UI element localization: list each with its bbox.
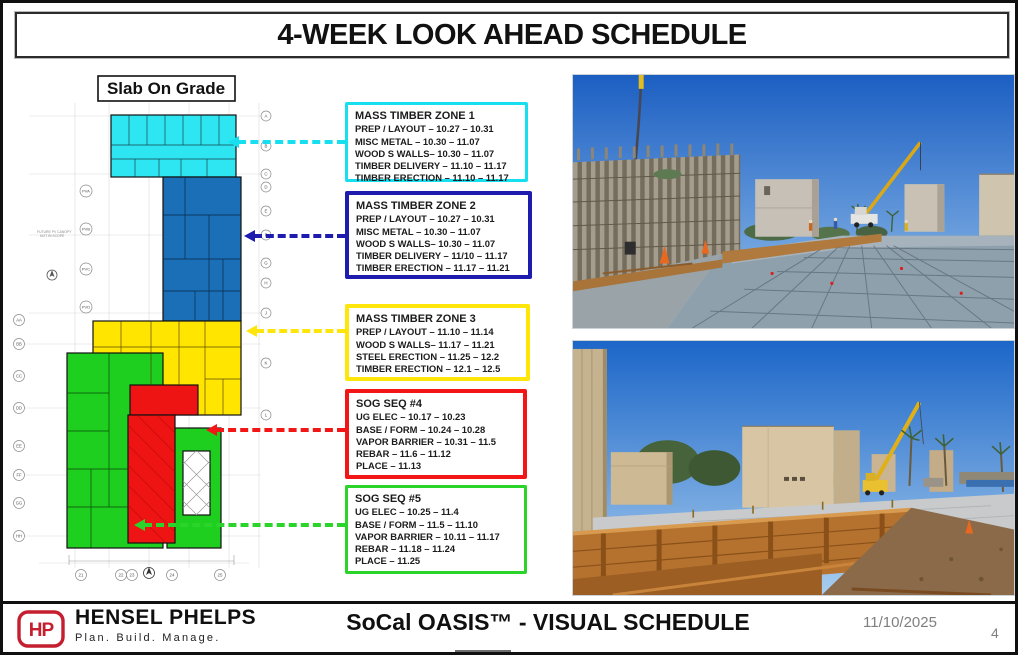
svg-text:22: 22 bbox=[119, 573, 124, 578]
schedule-line: STEEL ERECTION – 11.25 – 12.2 bbox=[356, 351, 519, 363]
svg-text:PVA: PVA bbox=[82, 189, 90, 194]
callout-sog-seq-4: SOG SEQ #4 UG ELEC – 10.17 – 10.23 BASE … bbox=[345, 389, 527, 479]
schedule-line: TIMBER ERECTION – 11.10 – 11.17 bbox=[355, 172, 518, 184]
svg-text:D: D bbox=[264, 185, 267, 190]
svg-text:CC: CC bbox=[16, 374, 22, 379]
svg-text:C: C bbox=[264, 172, 267, 177]
callout-mass-timber-zone-3: MASS TIMBER ZONE 3 PREP / LAYOUT – 11.10… bbox=[345, 304, 530, 381]
schedule-line: PLACE – 11.25 bbox=[355, 555, 517, 567]
svg-text:PVB: PVB bbox=[82, 227, 90, 232]
svg-text:21: 21 bbox=[79, 573, 84, 578]
callout-title: MASS TIMBER ZONE 2 bbox=[356, 199, 521, 213]
zone2-mass-timber bbox=[163, 177, 241, 321]
schedule-line: WOOD S WALLS– 11.17 – 11.21 bbox=[356, 339, 519, 351]
grid-bubbles-pv: PVA PVB PVC PVD bbox=[80, 185, 92, 313]
svg-text:BB: BB bbox=[16, 342, 22, 347]
schedule-line: PREP / LAYOUT – 11.10 – 11.14 bbox=[356, 326, 519, 338]
svg-text:K: K bbox=[265, 361, 268, 366]
schedule-line: VAPOR BARRIER – 10.11 – 11.17 bbox=[355, 531, 517, 543]
schedule-line: VAPOR BARRIER – 10.31 – 11.5 bbox=[356, 436, 516, 448]
svg-text:B: B bbox=[265, 144, 268, 149]
callout-mass-timber-zone-2: MASS TIMBER ZONE 2 PREP / LAYOUT – 10.27… bbox=[345, 191, 532, 279]
connector-zone1-line bbox=[238, 140, 345, 144]
schedule-line: UG ELEC – 10.17 – 10.23 bbox=[356, 411, 516, 423]
svg-text:A: A bbox=[265, 114, 268, 119]
company-name: HENSEL PHELPS bbox=[75, 606, 256, 630]
svg-text:23: 23 bbox=[130, 573, 135, 578]
connector-zone2-line bbox=[254, 234, 345, 238]
grid-bubbles-left: AA BB CC DD EE FF GG HH bbox=[14, 315, 25, 542]
schedule-line: PLACE – 11.13 bbox=[356, 460, 516, 472]
schedule-slide: 4-WEEK LOOK AHEAD SCHEDULE bbox=[0, 0, 1018, 655]
plan-zones bbox=[67, 115, 241, 548]
sog4-red-band bbox=[130, 385, 198, 415]
svg-text:DD: DD bbox=[16, 406, 22, 411]
page-number: 4 bbox=[991, 625, 999, 641]
svg-text:PVC: PVC bbox=[82, 267, 90, 272]
callout-title: SOG SEQ #4 bbox=[356, 397, 516, 411]
plan-note: FUTURE PV CANOPY NOT IN SCOPE bbox=[37, 230, 72, 238]
svg-text:E: E bbox=[265, 209, 268, 214]
zone1-mass-timber bbox=[111, 115, 236, 177]
svg-text:25: 25 bbox=[218, 573, 223, 578]
callout-title: MASS TIMBER ZONE 1 bbox=[355, 109, 518, 123]
connector-sog4-line bbox=[216, 428, 345, 432]
callout-title: MASS TIMBER ZONE 3 bbox=[356, 312, 519, 326]
connector-sog5-line bbox=[144, 523, 345, 527]
footer-slide-title: SoCal OASIS™ - VISUAL SCHEDULE bbox=[303, 609, 793, 636]
schedule-line: TIMBER DELIVERY – 11/10 – 11.17 bbox=[356, 250, 521, 262]
svg-text:24: 24 bbox=[170, 573, 175, 578]
logo-hp-text: HP bbox=[29, 620, 55, 641]
schedule-line: WOOD S WALLS– 10.30 – 11.07 bbox=[356, 238, 521, 250]
slab-on-grade-plan: Slab On Grade FUTURE PV CANOPY NOT IN SC… bbox=[9, 63, 345, 603]
schedule-line: MISC METAL – 10.30 – 11.07 bbox=[355, 136, 518, 148]
pump-hose bbox=[639, 75, 644, 89]
schedule-line: TIMBER DELIVERY – 11.10 – 11.17 bbox=[355, 160, 518, 172]
schedule-line: REBAR – 11.18 – 11.24 bbox=[355, 543, 517, 555]
svg-text:G: G bbox=[264, 261, 268, 266]
schedule-line: UG ELEC – 10.25 – 11.4 bbox=[355, 506, 517, 518]
connector-zone3-line bbox=[256, 329, 345, 333]
footer-divider bbox=[3, 601, 1018, 604]
schedule-line: PREP / LAYOUT – 10.27 – 10.31 bbox=[356, 213, 521, 225]
hensel-phelps-logo: HP bbox=[17, 610, 65, 648]
callout-mass-timber-zone-1: MASS TIMBER ZONE 1 PREP / LAYOUT – 10.27… bbox=[345, 102, 528, 182]
svg-text:EE: EE bbox=[16, 444, 22, 449]
svg-text:HH: HH bbox=[16, 534, 22, 539]
schedule-line: PREP / LAYOUT – 10.27 – 10.31 bbox=[355, 123, 518, 135]
schedule-line: REBAR – 11.6 – 11.12 bbox=[356, 448, 516, 460]
callout-sog-seq-5: SOG SEQ #5 UG ELEC – 10.25 – 11.4 BASE /… bbox=[345, 485, 527, 574]
company-tagline: Plan. Build. Manage. bbox=[75, 632, 256, 644]
page-title: 4-WEEK LOOK AHEAD SCHEDULE bbox=[277, 19, 746, 52]
schedule-line: WOOD S WALLS– 10.30 – 11.07 bbox=[355, 148, 518, 160]
dimension-lines bbox=[69, 555, 234, 565]
schedule-line: BASE / FORM – 10.24 – 10.28 bbox=[356, 424, 516, 436]
photo-site-golden-hour bbox=[572, 340, 1015, 596]
plan-label: Slab On Grade bbox=[107, 79, 225, 98]
svg-text:AA: AA bbox=[16, 318, 22, 323]
svg-text:FF: FF bbox=[16, 473, 22, 478]
grid-bubbles-right: A B C D E F G H J K L bbox=[261, 111, 271, 420]
svg-text:NOT IN SCOPE: NOT IN SCOPE bbox=[40, 234, 65, 238]
svg-text:PVD: PVD bbox=[82, 305, 90, 310]
callout-title: SOG SEQ #5 bbox=[355, 492, 517, 506]
schedule-line: TIMBER ERECTION – 12.1 – 12.5 bbox=[356, 363, 519, 375]
schedule-line: TIMBER ERECTION – 11.17 – 11.21 bbox=[356, 262, 521, 274]
svg-text:J: J bbox=[265, 311, 267, 316]
svg-text:H: H bbox=[264, 281, 267, 286]
company-block: HENSEL PHELPS Plan. Build. Manage. bbox=[75, 606, 256, 644]
schedule-line: MISC METAL – 10.30 – 11.07 bbox=[356, 226, 521, 238]
schedule-line: BASE / FORM – 11.5 – 11.10 bbox=[355, 519, 517, 531]
window-edge-artifact bbox=[455, 650, 511, 655]
svg-text:GG: GG bbox=[16, 501, 23, 506]
photo-site-morning bbox=[572, 74, 1015, 329]
header-title-box: 4-WEEK LOOK AHEAD SCHEDULE bbox=[15, 12, 1009, 58]
footer-date: 11/10/2025 bbox=[863, 614, 937, 631]
